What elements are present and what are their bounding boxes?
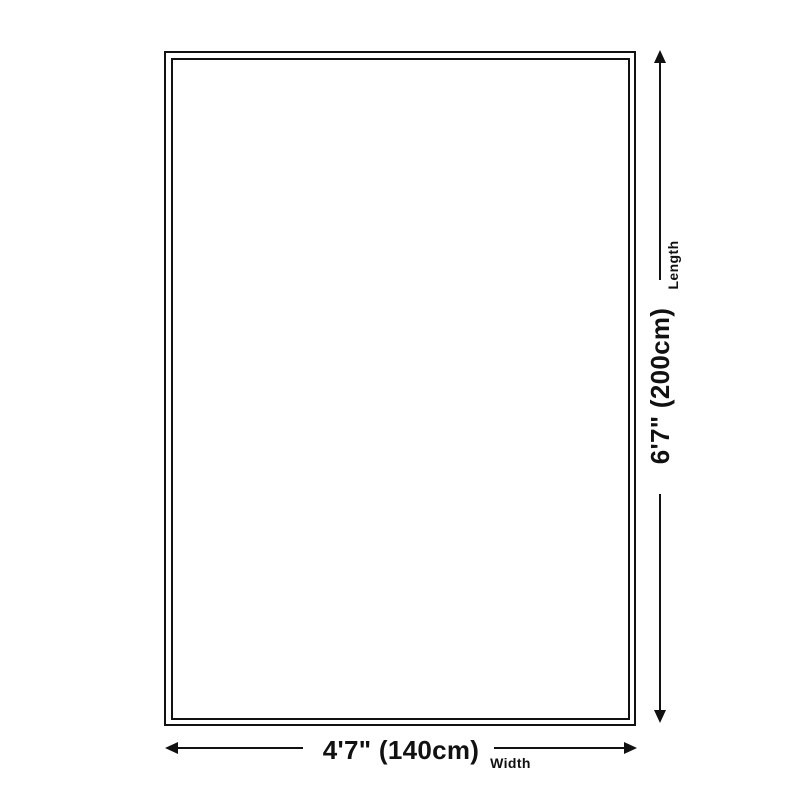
rug-inner-border [171, 58, 630, 720]
arrow-right-icon [624, 742, 637, 754]
arrow-down-icon [654, 710, 666, 723]
width-axis-label: Width [490, 756, 531, 770]
length-axis-label: Length [666, 240, 680, 289]
size-diagram: Length 6'7" (200cm) 4'7" (140cm) Width [0, 0, 800, 800]
length-value-label: 6'7" (200cm) [647, 308, 673, 465]
width-line-right-segment [494, 747, 624, 750]
width-line-left-segment [177, 747, 303, 750]
length-line-top-segment [659, 61, 662, 280]
length-line-bottom-segment [659, 494, 662, 712]
rug-outline [164, 51, 636, 726]
width-value-label: 4'7" (140cm) [323, 737, 480, 763]
